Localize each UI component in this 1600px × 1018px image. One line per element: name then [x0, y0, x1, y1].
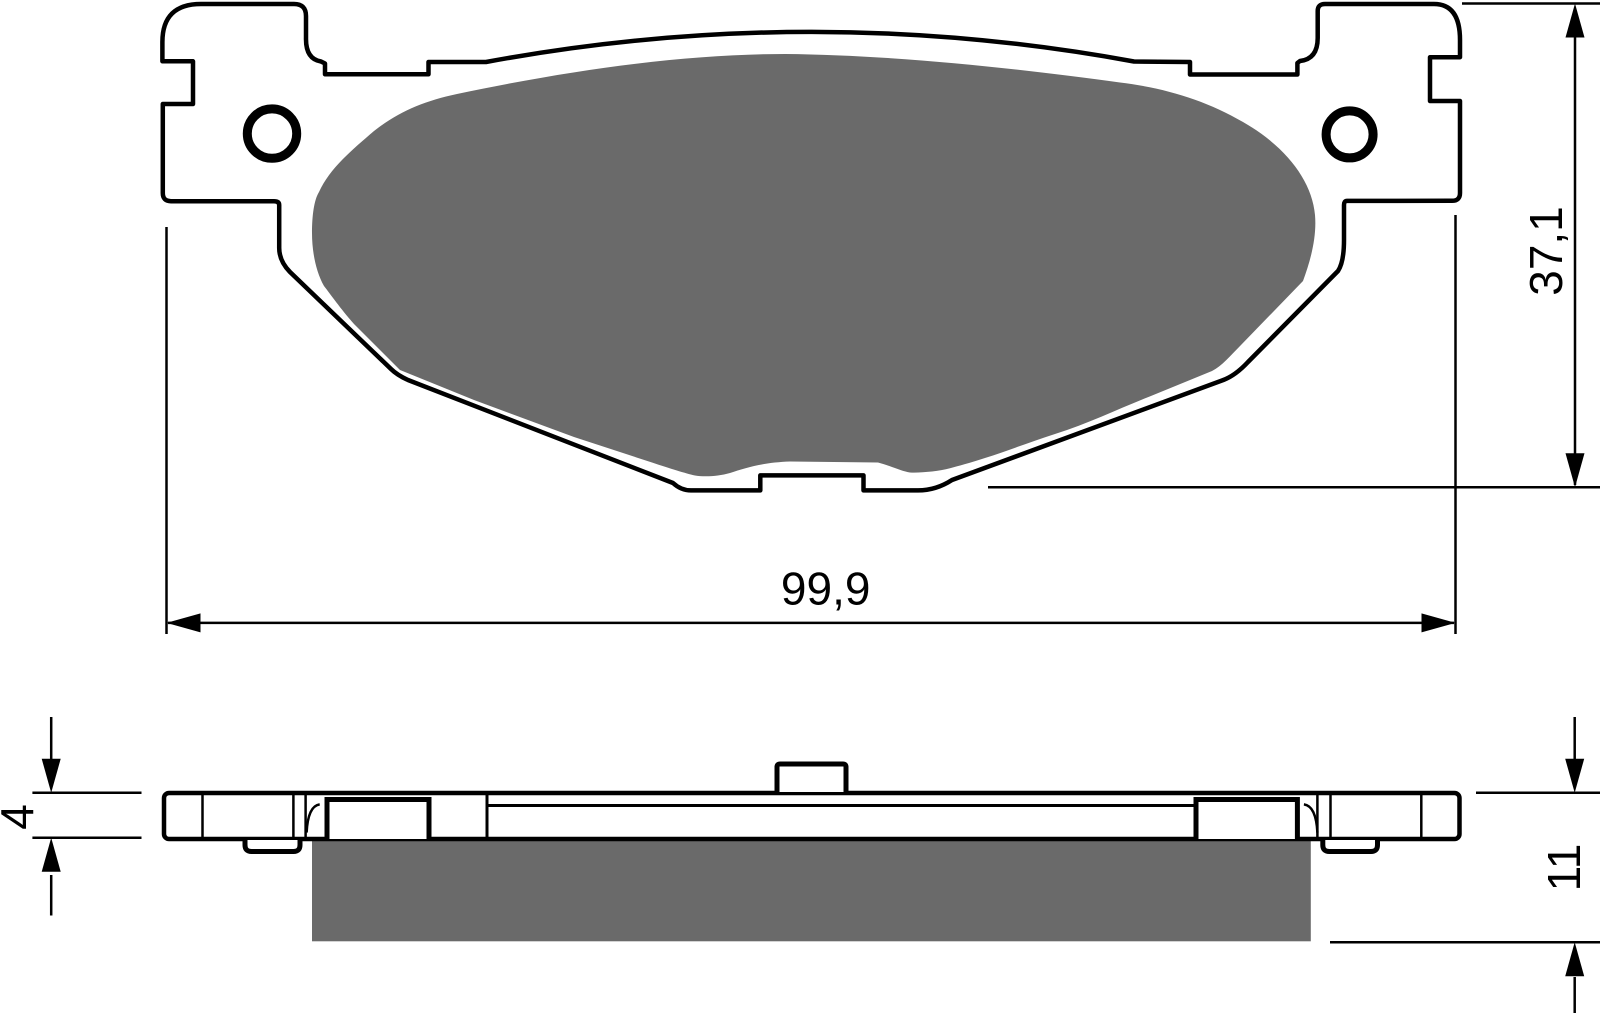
- svg-text:99,9: 99,9: [781, 563, 871, 615]
- svg-text:11: 11: [1538, 844, 1590, 892]
- svg-text:4: 4: [0, 804, 43, 830]
- svg-text:37,1: 37,1: [1520, 206, 1572, 296]
